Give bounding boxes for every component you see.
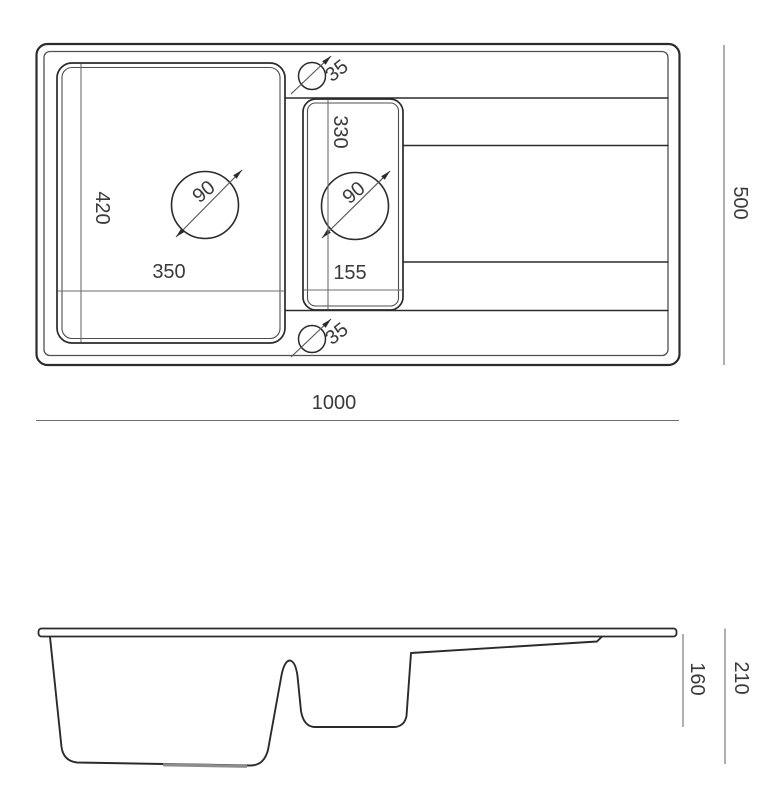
bowl-profile-path	[50, 637, 602, 766]
half-drain-diameter-label: 90	[338, 177, 369, 208]
main-bowl-drain: 90	[172, 170, 243, 239]
overall-depth-label: 500	[729, 186, 751, 219]
tap-hole-circle	[299, 63, 326, 90]
top-view: 90 90 35 35	[36, 44, 751, 421]
tap-hole-bottom: 35	[291, 318, 353, 357]
main-drain-diameter-label: 90	[188, 176, 219, 207]
dimension-main-bowl-width: 350	[58, 261, 284, 291]
dimension-half-bowl-profile-depth: 160	[683, 634, 708, 727]
half-bowl-depth-label: 330	[329, 115, 351, 148]
sink-outline-outer	[37, 44, 680, 365]
technical-drawing-canvas: 90 90 35 35	[0, 0, 762, 800]
side-view: 160 210	[39, 629, 753, 767]
overall-width-label: 1000	[312, 392, 357, 414]
main-bowl-depth-label: 420	[91, 191, 113, 224]
dimension-total-profile-depth: 210	[725, 629, 752, 765]
dimension-half-bowl-width: 155	[304, 262, 402, 290]
dimension-main-bowl-depth: 420	[81, 64, 113, 342]
sink-technical-drawing: 90 90 35 35	[0, 0, 762, 800]
dimension-overall-width: 1000	[36, 392, 679, 421]
main-bowl-width-label: 350	[152, 261, 185, 283]
drain-recess-line	[163, 765, 247, 767]
half-bowl-width-label: 155	[333, 262, 366, 284]
half-bowl-profile-depth-label: 160	[686, 662, 708, 695]
rim-profile	[39, 629, 677, 637]
tap-hole-circle	[299, 326, 326, 353]
drain-diameter-line	[176, 170, 242, 237]
dimension-overall-depth: 500	[724, 45, 751, 365]
tap-hole-top: 35	[291, 55, 353, 94]
total-profile-depth-label: 210	[730, 661, 752, 694]
half-bowl-drain: 90	[322, 171, 391, 240]
